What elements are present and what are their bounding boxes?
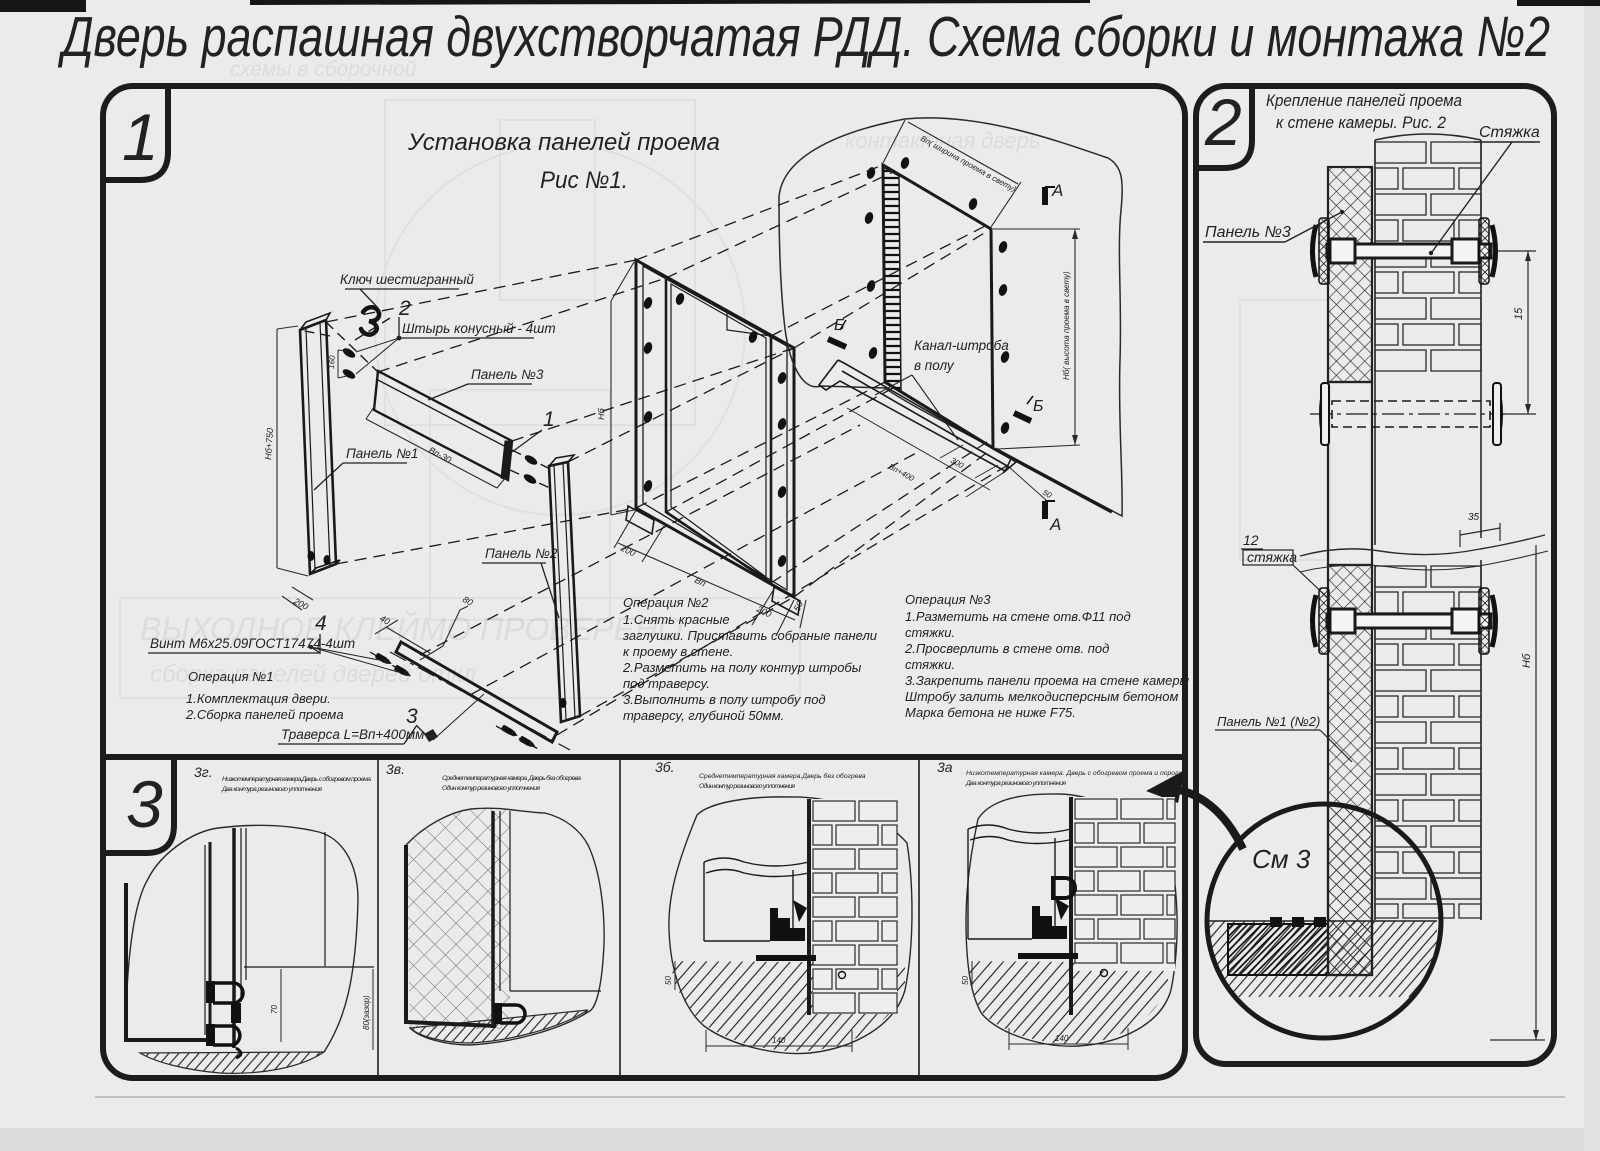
svg-text:Панель №1 (№2): Панель №1 (№2): [1217, 714, 1320, 729]
svg-text:под траверсу.: под траверсу.: [623, 676, 710, 691]
svg-text:траверсу, глубиной 50мм.: траверсу, глубиной 50мм.: [623, 708, 784, 723]
svg-text:См 3: См 3: [1252, 844, 1311, 874]
svg-text:Операция №3: Операция №3: [905, 592, 991, 607]
svg-text:15: 15: [1513, 307, 1525, 320]
svg-text:3а: 3а: [937, 759, 953, 775]
svg-text:Стяжка: Стяжка: [1479, 124, 1540, 141]
svg-text:к стене камеры. Рис. 2: к стене камеры. Рис. 2: [1276, 113, 1446, 132]
svg-text:Операция №1: Операция №1: [188, 669, 273, 684]
svg-text:Траверса L=Вп+400мм: Траверса L=Вп+400мм: [281, 727, 424, 742]
svg-text:Два контура резинового уплотне: Два контура резинового уплотнения: [965, 780, 1066, 787]
svg-text:Крепление панелей проема: Крепление панелей проема: [1266, 91, 1462, 110]
svg-text:3г.: 3г.: [194, 764, 213, 780]
svg-text:70: 70: [270, 1005, 279, 1014]
svg-text:Нб( высота проема в свету): Нб( высота проема в свету): [1062, 271, 1071, 380]
svg-text:2.Сборка панелей проема: 2.Сборка панелей проема: [185, 707, 344, 722]
svg-text:Установка панелей проема: Установка панелей проема: [407, 129, 720, 156]
svg-text:1: 1: [122, 100, 159, 174]
svg-text:к проему в стене.: к проему в стене.: [623, 644, 733, 659]
svg-text:Панель №2: Панель №2: [485, 546, 558, 561]
svg-text:стяжки.: стяжки.: [905, 625, 955, 640]
svg-text:в полу: в полу: [914, 358, 955, 373]
svg-text:Один контур резинового уплотне: Один контур резинового уплотнения: [442, 784, 540, 792]
svg-text:Ключ шестигранный: Ключ шестигранный: [340, 272, 474, 287]
svg-text:Винт М6х25.09ГОСТ17474-4шт: Винт М6х25.09ГОСТ17474-4шт: [150, 636, 355, 651]
svg-text:3в.: 3в.: [386, 761, 405, 777]
svg-text:Среднетемпературная камера. Дв: Среднетемпературная камера. Дверь без об…: [442, 774, 581, 782]
svg-text:Панель №3: Панель №3: [1205, 224, 1291, 241]
svg-text:А: А: [1049, 515, 1061, 534]
svg-text:2.Просверлить в стене отв. п: 2.Просверлить в стене отв. под: [904, 641, 1109, 656]
svg-text:50: 50: [664, 976, 673, 985]
svg-text:2: 2: [1204, 85, 1242, 159]
svg-text:35: 35: [1468, 512, 1480, 523]
svg-text:1.Комплектация двери.: 1.Комплектация двери.: [186, 691, 331, 706]
svg-text:Марка бетона не ниже F75.: Марка бетона не ниже F75.: [905, 705, 1076, 720]
svg-text:2: 2: [398, 297, 411, 320]
svg-text:3б.: 3б.: [655, 759, 675, 775]
svg-text:50: 50: [961, 976, 970, 985]
svg-text:140: 140: [1055, 1034, 1069, 1043]
svg-text:стяжки.: стяжки.: [905, 657, 955, 672]
svg-text:4: 4: [315, 612, 327, 635]
svg-text:Штробу залить мелкодисперсным: Штробу залить мелкодисперсным бетоном: [905, 689, 1178, 704]
svg-text:Рис №1.: Рис №1.: [540, 167, 628, 194]
svg-text:А: А: [1051, 181, 1063, 200]
svg-text:3: 3: [126, 767, 163, 841]
svg-text:Низкотемпературная камера. Две: Низкотемпературная камера. Дверь с обогр…: [966, 769, 1182, 777]
svg-text:заглушки. Приставить собраные: заглушки. Приставить собраные панели: [622, 628, 877, 643]
svg-text:Канал-штроба: Канал-штроба: [914, 338, 1009, 353]
svg-text:1.Разметить на стене отв.Ф11 п: 1.Разметить на стене отв.Ф11 под: [905, 609, 1131, 624]
svg-text:80(зазор): 80(зазор): [362, 995, 371, 1030]
svg-text:Среднетемпературная камера.Две: Среднетемпературная камера.Дверь без обо…: [699, 772, 866, 780]
svg-text:160: 160: [327, 355, 337, 369]
svg-text:Штырь конусный - 4шт: Штырь конусный - 4шт: [402, 321, 556, 336]
svg-text:Один контур резинового уплотне: Один контур резинового уплотнения: [699, 782, 795, 790]
svg-text:Два контура резинового уплотне: Два контура резинового уплотнения: [221, 786, 322, 793]
svg-text:Дверь распашная двухстворчатая: Дверь распашная двухстворчатая РДД. Схем…: [57, 5, 1550, 69]
svg-text:1.Снять красные: 1.Снять красные: [623, 612, 730, 627]
svg-text:Б: Б: [1033, 398, 1043, 415]
svg-text:2.Разметить на полу контур штр: 2.Разметить на полу контур штробы: [622, 660, 862, 675]
svg-text:Нб: Нб: [1521, 653, 1533, 668]
svg-text:Нб: Нб: [596, 407, 606, 420]
svg-text:3.Закрепить панели проема на с: 3.Закрепить панели проема на стене камер…: [905, 673, 1190, 688]
svg-text:12: 12: [1243, 532, 1259, 548]
svg-text:Операция №2: Операция №2: [623, 595, 709, 610]
svg-text:Низкотемпературная камера.Двер: Низкотемпературная камера.Дверь с обогре…: [222, 775, 371, 783]
svg-text:Панель №3: Панель №3: [471, 367, 544, 382]
svg-text:Панель №1: Панель №1: [346, 446, 418, 461]
svg-text:3: 3: [406, 705, 418, 728]
svg-text:140: 140: [772, 1036, 786, 1045]
svg-text:3.Выполнить в полу штробу под: 3.Выполнить в полу штробу под: [623, 692, 826, 707]
svg-text:стяжка: стяжка: [1247, 549, 1297, 565]
